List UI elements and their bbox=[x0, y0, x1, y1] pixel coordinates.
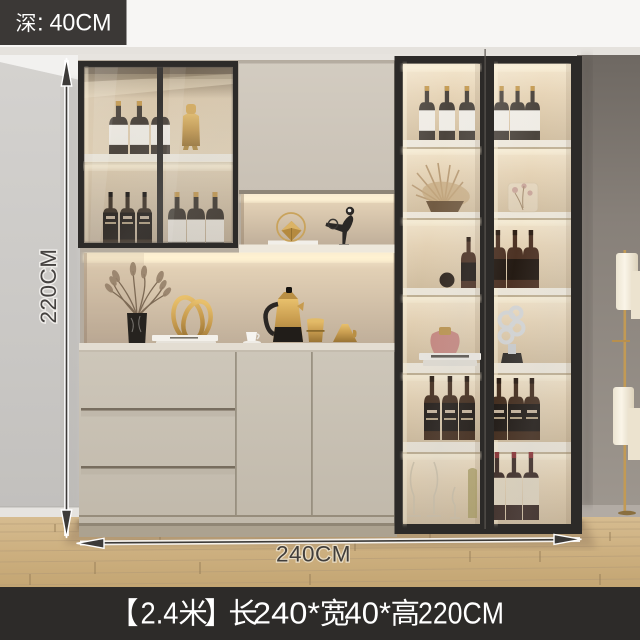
svg-text:220CM: 220CM bbox=[418, 597, 504, 631]
svg-text:40CM: 40CM bbox=[50, 10, 112, 37]
svg-text:220CM: 220CM bbox=[36, 248, 61, 323]
svg-text:240CM: 240CM bbox=[276, 542, 351, 567]
svg-text:240*: 240* bbox=[253, 597, 320, 631]
svg-text::: : bbox=[37, 10, 44, 37]
svg-text:40*: 40* bbox=[345, 597, 392, 631]
svg-text:2.4: 2.4 bbox=[141, 597, 179, 631]
